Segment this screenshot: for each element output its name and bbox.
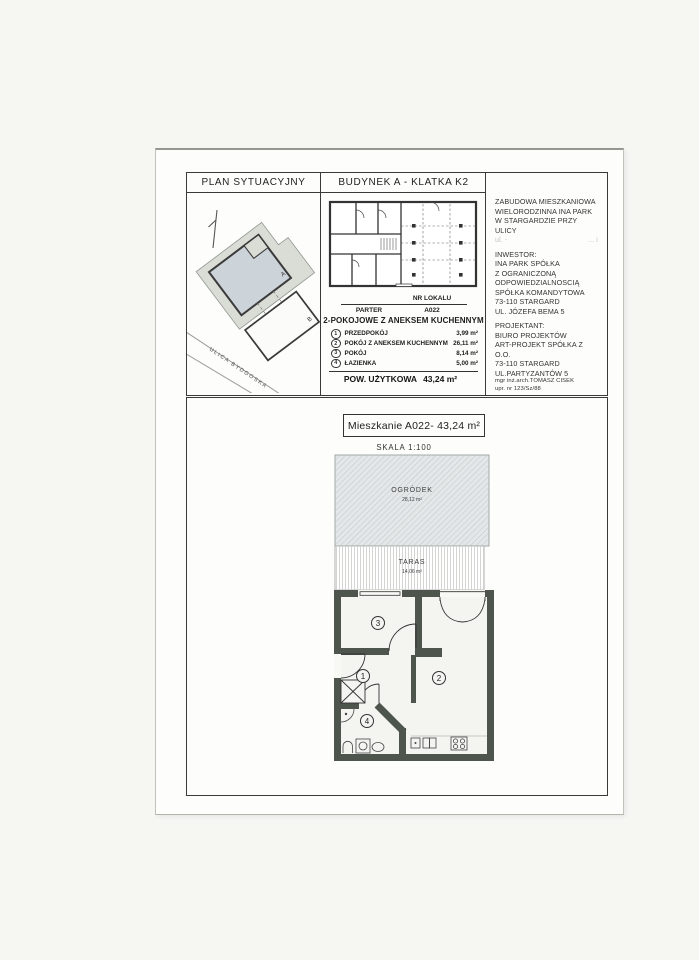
total-divider bbox=[329, 371, 478, 372]
street-label: ULICA BYDGOSKA bbox=[208, 347, 268, 390]
investor-line: UL. JÓZEFA BEMA 5 bbox=[495, 307, 598, 317]
room-area: 3,99 m² bbox=[456, 330, 478, 337]
project-title-line: ZABUDOWA MIESZKANIOWA bbox=[495, 197, 598, 207]
architect-line: mgr inż.arch.TOMASZ CISEK bbox=[495, 378, 598, 386]
unit-number-table: NR LOKALU PARTER A022 bbox=[341, 295, 467, 315]
info-table: PLAN SYTUACYJNY bbox=[186, 172, 608, 396]
building-header: BUDYNEK A - KLATKA K2 bbox=[321, 173, 486, 193]
site-plan-drawing: A B ULICA BYDGOSKA bbox=[187, 194, 320, 393]
north-arrow-icon bbox=[209, 210, 218, 248]
room-area: 26,11 m² bbox=[453, 340, 478, 347]
license-line: upr. nr 123/Sz/88 bbox=[495, 386, 598, 394]
unit-number-value: A022 bbox=[397, 307, 467, 314]
apartment-title-box: Mieszkanie A022- 43,24 m² bbox=[343, 414, 485, 437]
designer-line: BIURO PROJEKTÓW bbox=[495, 331, 598, 341]
investor-line: SPÓŁKA KOMANDYTOWA bbox=[495, 288, 598, 298]
building-footprints: A B bbox=[196, 215, 320, 363]
apartment-plan-frame: Mieszkanie A022- 43,24 m² SKALA 1:100 OG… bbox=[186, 397, 608, 796]
room-name: POKÓJ Z ANEKSEM KUCHENNYM bbox=[345, 340, 448, 347]
garden-area-value: 28,12 m² bbox=[402, 497, 422, 503]
terrace-area: TARAS 14,06 m² bbox=[335, 546, 484, 590]
scanned-sheet: PLAN SYTUACYJNY bbox=[155, 148, 624, 815]
floor-label: PARTER bbox=[341, 307, 397, 314]
room-1-number: 1 bbox=[361, 672, 366, 681]
building-panel: BUDYNEK A - KLATKA K2 bbox=[320, 173, 486, 395]
site-plan-panel: PLAN SYTUACYJNY bbox=[187, 173, 320, 395]
designer-label: PROJEKTANT: bbox=[495, 321, 598, 331]
room-row: 1 PRZEDPOKÓJ 3,99 m² bbox=[331, 329, 478, 339]
project-faded-line: ul. -... i bbox=[495, 235, 598, 245]
room-number-badge: 4 bbox=[331, 359, 341, 369]
room-number-badge: 2 bbox=[331, 339, 341, 349]
room-row: 4 ŁAZIENKA 5,00 m² bbox=[331, 358, 478, 368]
designer-line: ART-PROJEKT SPÓŁKA Z O.O. bbox=[495, 340, 598, 359]
investor-line: ODPOWIEDZIALNOSCIĄ bbox=[495, 278, 598, 288]
room-name: ŁAZIENKA bbox=[345, 360, 377, 367]
building-body: NR LOKALU PARTER A022 2-POKOJOWE Z ANEKS… bbox=[321, 194, 486, 395]
designer-line: UL.PARTYZANTÓW 5 bbox=[495, 369, 598, 379]
terrace-area-value: 14,06 m² bbox=[402, 569, 422, 575]
room-name: PRZEDPOKÓJ bbox=[345, 330, 388, 337]
apartment-floor-plan-drawing: OGRÓDEK 28,12 m² TARAS 14,06 m² bbox=[327, 451, 502, 768]
room-4-number: 4 bbox=[365, 717, 370, 726]
unit-number-label: NR LOKALU bbox=[397, 295, 467, 304]
room-2-number: 2 bbox=[437, 674, 442, 683]
room-area: 5,00 m² bbox=[456, 360, 478, 367]
room-row: 2 POKÓJ Z ANEKSEM KUCHENNYM 26,11 m² bbox=[331, 339, 478, 349]
project-title-line: W STARGARDZIE PRZY ULICY bbox=[495, 216, 598, 235]
investor-line: 73-110 STARGARD bbox=[495, 297, 598, 307]
room-3-number: 3 bbox=[376, 619, 381, 628]
room-list: 1 PRZEDPOKÓJ 3,99 m² 2 POKÓJ Z ANEKSEM K… bbox=[331, 329, 478, 368]
project-info-panel: ZABUDOWA MIESZKANIOWA WIELORODZINNA INA … bbox=[485, 173, 605, 395]
scanned-document-page: { "table": { "col1_header": "PLAN SYTUAC… bbox=[0, 0, 699, 960]
room-name: POKÓJ bbox=[345, 350, 367, 357]
unit-type-title: 2-POKOJOWE Z ANEKSEM KUCHENNYM bbox=[321, 316, 486, 325]
designer-line: 73-110 STARGARD bbox=[495, 359, 598, 369]
project-title-line: WIELORODZINNA INA PARK bbox=[495, 207, 598, 217]
site-plan-body: A B ULICA BYDGOSKA bbox=[187, 194, 320, 395]
usable-area-value: 43,24 m² bbox=[423, 374, 457, 384]
building-floor-plan-drawing bbox=[326, 196, 481, 292]
site-plan-header: PLAN SYTUACYJNY bbox=[187, 173, 320, 193]
investor-line: INA PARK SPÓŁKA bbox=[495, 259, 598, 269]
wardrobe bbox=[341, 680, 365, 703]
investor-line: Z OGRANICZONĄ bbox=[495, 269, 598, 279]
room-number-badge: 1 bbox=[331, 329, 341, 339]
terrace-label: TARAS bbox=[399, 559, 426, 566]
room-number-badge: 3 bbox=[331, 349, 341, 359]
garden-label: OGRÓDEK bbox=[391, 485, 432, 494]
investor-label: INWESTOR: bbox=[495, 250, 598, 260]
room-area: 8,14 m² bbox=[456, 350, 478, 357]
usable-area-label: POW. UŻYTKOWA bbox=[344, 374, 417, 384]
garden-area: OGRÓDEK 28,12 m² bbox=[335, 455, 489, 546]
project-info-text: ZABUDOWA MIESZKANIOWA WIELORODZINNA INA … bbox=[486, 173, 605, 393]
usable-area-total: POW. UŻYTKOWA43,24 m² bbox=[321, 374, 480, 384]
room-row: 3 POKÓJ 8,14 m² bbox=[331, 349, 478, 359]
